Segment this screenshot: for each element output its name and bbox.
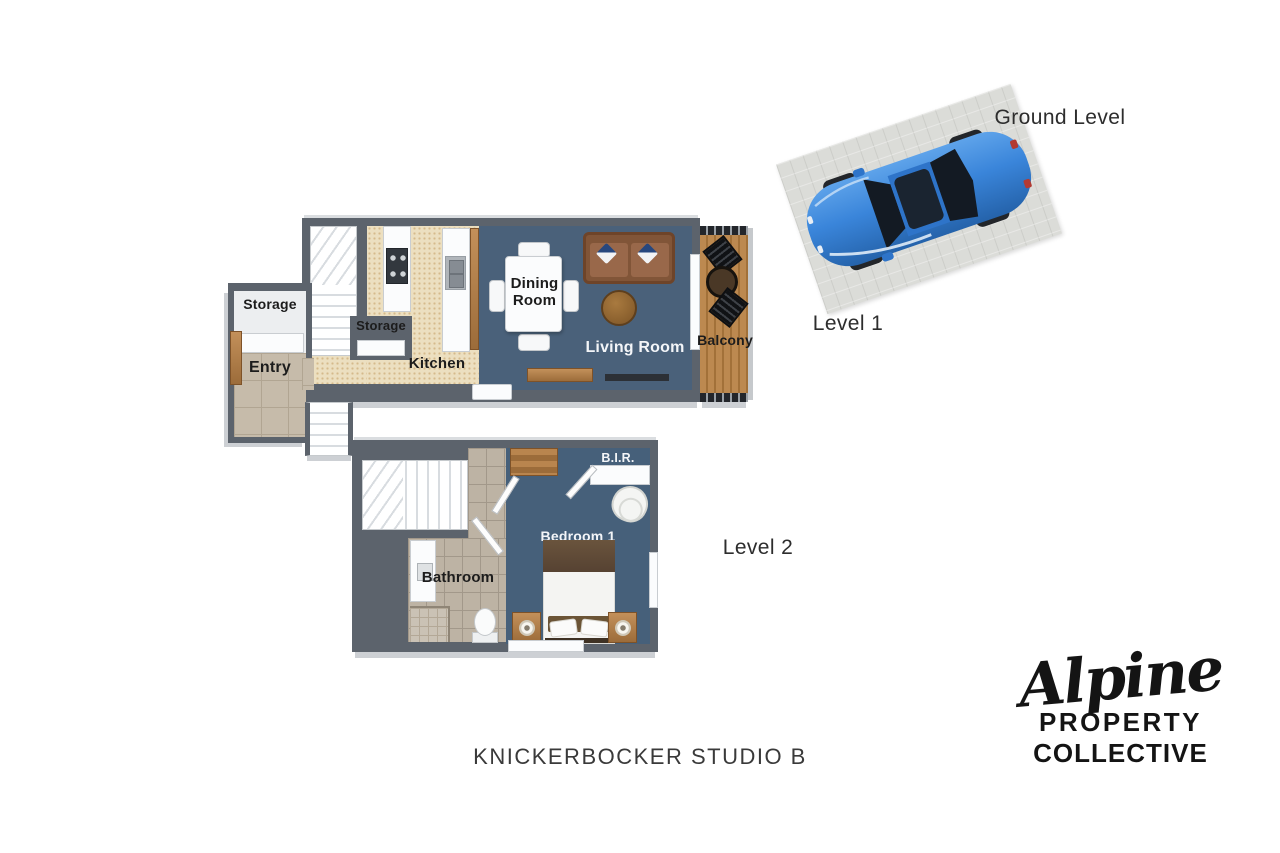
lamp <box>519 620 535 636</box>
room-label-storage-left: Storage <box>230 296 310 312</box>
entry-doorway <box>302 358 314 390</box>
nightstand <box>608 612 637 643</box>
level1-main-block: Dining Room Kitchen Storage Living Room <box>302 218 700 402</box>
room-label-bir: B.I.R. <box>586 451 650 465</box>
ground-level-label: Ground Level <box>955 106 1165 130</box>
bathroom-wall <box>408 530 468 538</box>
dining-table: Dining Room <box>505 256 562 332</box>
level1-entry-annex: Storage Entry <box>228 283 312 443</box>
floorplan-page: Ground Level Dining Room <box>0 0 1280 853</box>
car-top-view <box>793 115 1044 283</box>
sofa <box>583 232 675 284</box>
toilet <box>474 608 496 636</box>
sink-basin <box>449 274 464 288</box>
brand-script-name: Alpine <box>1001 640 1240 717</box>
bed-pillow <box>580 618 609 637</box>
stair-winders <box>311 227 356 285</box>
nightstand <box>512 612 541 643</box>
stair-winders <box>363 461 403 529</box>
staircase-lower-run <box>305 402 353 456</box>
dining-chair <box>563 280 579 312</box>
balcony-railing <box>700 226 748 235</box>
level1-label: Level 1 <box>798 312 898 336</box>
staircase-level2 <box>362 460 468 530</box>
door-threshold <box>508 640 584 652</box>
shower <box>410 606 450 642</box>
room-label-entry: Entry <box>234 359 306 377</box>
room-label-living: Living Room <box>570 339 700 357</box>
door-threshold <box>472 384 512 400</box>
room-label-storage-mid: Storage <box>346 319 416 334</box>
dresser <box>510 448 558 476</box>
level2-block: Bathroom B.I.R. Bedroom 1 <box>352 440 658 652</box>
brand-line2: COLLECTIVE <box>1003 738 1238 769</box>
tv-bench <box>527 368 593 382</box>
plan-title: KNICKERBOCKER STUDIO B <box>340 744 940 770</box>
dining-chair <box>489 280 505 312</box>
room-label-dining: Dining Room <box>506 275 563 310</box>
brand-logo: Alpine PROPERTY COLLECTIVE <box>1003 650 1238 768</box>
window <box>649 552 658 608</box>
balcony-deck: Balcony <box>700 226 748 402</box>
coffee-table <box>601 290 637 326</box>
built-in-robe <box>590 465 650 485</box>
bed-blanket <box>543 540 615 572</box>
island-breakfast-bar <box>470 228 479 350</box>
bed <box>543 540 615 644</box>
storage-cabinet <box>357 340 405 356</box>
kitchen-sink <box>445 256 466 290</box>
room-label-balcony: Balcony <box>695 332 755 348</box>
stove-cooktop <box>386 248 408 284</box>
balcony-railing <box>700 393 748 402</box>
room-label-kitchen: Kitchen <box>397 355 477 372</box>
level2-label: Level 2 <box>708 536 808 560</box>
tv <box>605 374 669 381</box>
lamp <box>615 620 631 636</box>
sink-basin <box>449 260 464 274</box>
kitchen-floor-extension <box>310 356 367 384</box>
dining-chair <box>518 334 550 351</box>
room-label-bathroom: Bathroom <box>402 569 514 586</box>
storage-shelf <box>236 333 304 353</box>
kitchen-island <box>442 228 470 352</box>
